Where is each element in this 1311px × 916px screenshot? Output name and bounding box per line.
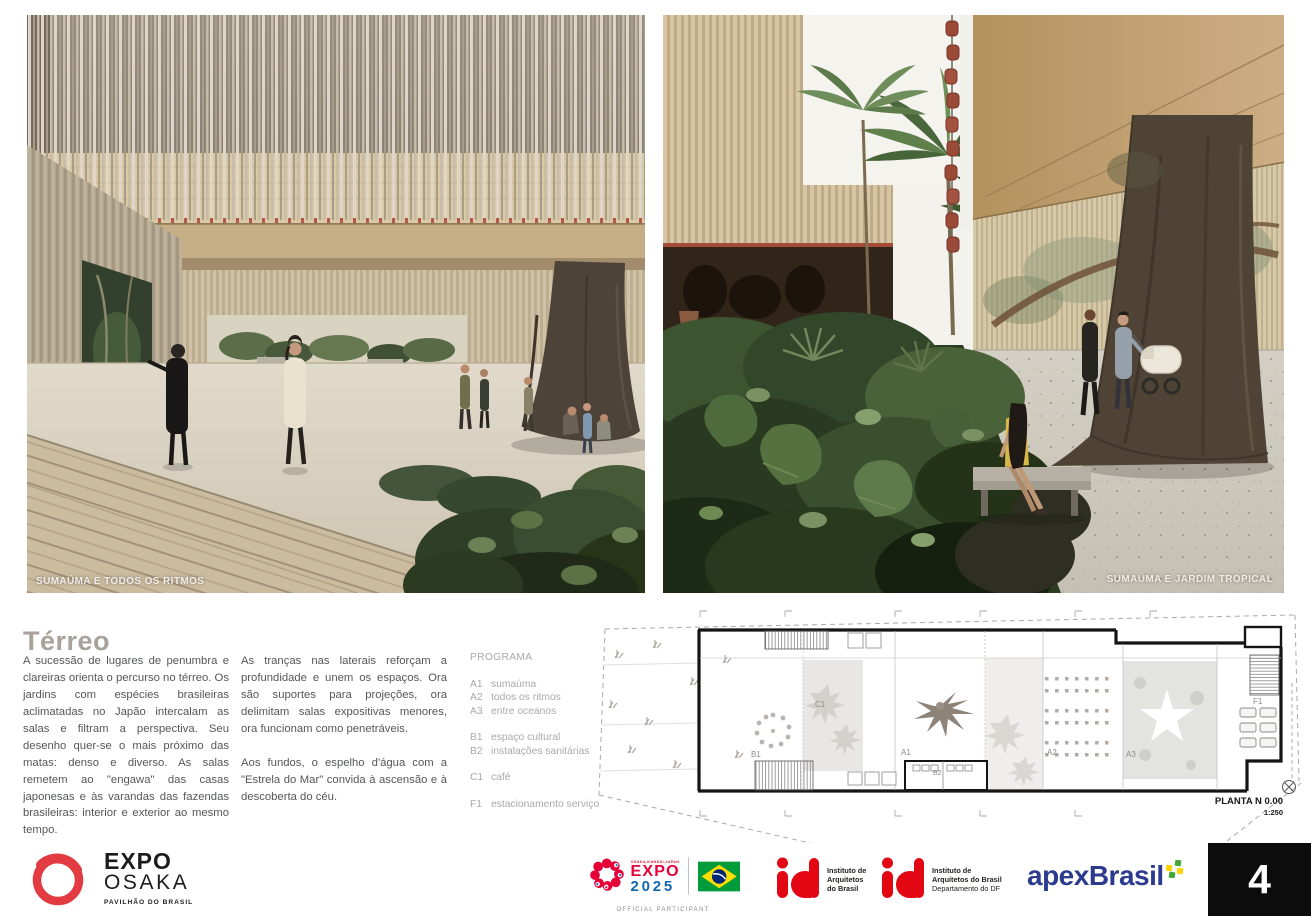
north-compass xyxy=(1283,781,1296,794)
logo-divider xyxy=(688,857,689,895)
expo-2025-flower-icon xyxy=(586,851,627,901)
hanging-strands xyxy=(27,15,645,220)
seat-grid xyxy=(1045,677,1109,757)
iab-national-line3: do Brasil xyxy=(827,884,866,893)
expo-osaka-wordmark: EXPO OSAKA PAVILHÃO DO BRASIL xyxy=(104,847,193,906)
expo-osaka-logo: EXPO OSAKA PAVILHÃO DO BRASIL xyxy=(28,847,193,911)
plan-label-c1: C1 xyxy=(815,700,826,709)
official-participant-label: OFFICIAL PARTICIPANT xyxy=(586,907,740,913)
program-item-label: todos os ritmos xyxy=(491,691,561,705)
expo-2025-line2: 2025 xyxy=(630,879,679,894)
expo-osaka-ring-icon xyxy=(28,847,90,911)
program-item-label: entre oceanos xyxy=(491,705,556,719)
render-right-illustration xyxy=(663,15,1284,593)
iab-df-text: Instituto de Arquitetos do Brasil Depart… xyxy=(932,866,1002,893)
page-number: 4 xyxy=(1248,856,1271,903)
program-item-label: instalações sanitárias xyxy=(491,745,589,759)
program-item-code: B1 xyxy=(470,731,491,745)
expo-2025-line1: EXPO xyxy=(630,864,679,879)
stairs xyxy=(1250,655,1279,695)
paragraph: Aos fundos, o espelho d'água com a "Estr… xyxy=(241,755,447,806)
plan-title: PLANTA N 0.00 xyxy=(1215,796,1283,807)
render-caption: SUMAÚMA E JARDIM TROPICAL xyxy=(1107,574,1273,585)
plant-circle xyxy=(755,713,792,749)
program-item-label: espaço cultural xyxy=(491,731,560,745)
body-text-column-2: As tranças nas laterais reforçam a profu… xyxy=(241,653,447,823)
plan-label-b1: B1 xyxy=(751,750,761,759)
paragraph: As tranças nas laterais reforçam a profu… xyxy=(241,653,447,738)
ramp-hatch xyxy=(765,631,828,649)
program-item-label: estacionamento serviço xyxy=(491,798,599,812)
parking-cars xyxy=(1240,708,1276,747)
program-item-code: A3 xyxy=(470,705,491,719)
iab-glyph-icon xyxy=(881,856,925,902)
body-text-column-1: A sucessão de lugares de penumbra e clar… xyxy=(23,653,229,856)
iab-df-line2: Arquitetos do Brasil xyxy=(932,875,1002,884)
apex-brasil-wordmark: apexBrasil xyxy=(1027,861,1164,891)
iab-national-line2: Arquitetos xyxy=(827,875,866,884)
program-item-label: café xyxy=(491,771,510,785)
expo-osaka-line2: OSAKA xyxy=(104,872,193,894)
page-number-box: 4 xyxy=(1208,843,1311,916)
render-left-illustration xyxy=(27,15,645,593)
red-accent-line xyxy=(663,243,893,247)
brazil-flag-icon xyxy=(698,860,740,893)
paragraph: A sucessão de lugares de penumbra e clar… xyxy=(23,653,229,839)
iab-national-logo: Instituto de Arquitetos do Brasil xyxy=(776,856,866,902)
plan-label-f1: F1 xyxy=(1253,697,1263,706)
plan-label-b2: B2 xyxy=(933,770,942,777)
render-sumauma-jardim-tropical: SUMAÚMA E JARDIM TROPICAL xyxy=(663,15,1284,593)
expo-osaka-subtitle: PAVILHÃO DO BRASIL xyxy=(104,899,193,906)
louver-hatch xyxy=(755,761,813,790)
plan-gardens xyxy=(803,658,1217,791)
plan-scale: 1:250 xyxy=(1264,808,1283,817)
iab-df-logo: Instituto de Arquitetos do Brasil Depart… xyxy=(881,856,1002,902)
program-item-code: C1 xyxy=(470,771,491,785)
program-item-code: A2 xyxy=(470,691,491,705)
expo-2025-logo: OSAKA,KANSAI,JAPAN EXPO 2025 OFFICIAL PA… xyxy=(586,851,740,913)
plan-label-a1: A1 xyxy=(901,748,911,757)
program-item-code: A1 xyxy=(470,678,491,692)
iab-df-line1: Instituto de xyxy=(932,866,1002,875)
program-item-code: F1 xyxy=(470,798,491,812)
apex-pinwheel-icon xyxy=(1166,860,1184,878)
plan-label-a2: A2 xyxy=(1047,748,1057,757)
render-caption: SUMAÚMA E TODOS OS RITMOS xyxy=(36,576,204,587)
floor-plan-drawing: B1 C1 A1 B2 A2 A3 F1 PLANTA N 0.00 1:250 xyxy=(595,603,1307,843)
plan-label-a3: A3 xyxy=(1126,750,1136,759)
presentation-board: SUMAÚMA E TODOS OS RITMOS xyxy=(0,0,1311,916)
apex-brasil-logo: apexBrasil xyxy=(1027,861,1184,891)
iab-glyph-icon xyxy=(776,856,820,902)
iab-df-line3: Departamento do DF xyxy=(932,884,1002,893)
program-item-label: sumaúma xyxy=(491,678,536,692)
expo-2025-wordmark: OSAKA,KANSAI,JAPAN EXPO 2025 xyxy=(630,859,679,894)
expo-osaka-line1: EXPO xyxy=(104,850,193,872)
program-item-code: B2 xyxy=(470,745,491,759)
sumauma-tree-symbol xyxy=(914,692,974,737)
upper-facade xyxy=(27,15,645,227)
render-sumauma-todos-os-ritmos: SUMAÚMA E TODOS OS RITMOS xyxy=(27,15,645,593)
site-landscape xyxy=(600,640,743,771)
iab-national-line1: Instituto de xyxy=(827,866,866,875)
floor-plan: B1 C1 A1 B2 A2 A3 F1 PLANTA N 0.00 1:250 xyxy=(595,603,1307,843)
sanitary-room xyxy=(905,761,987,790)
iab-national-text: Instituto de Arquitetos do Brasil xyxy=(827,866,866,893)
